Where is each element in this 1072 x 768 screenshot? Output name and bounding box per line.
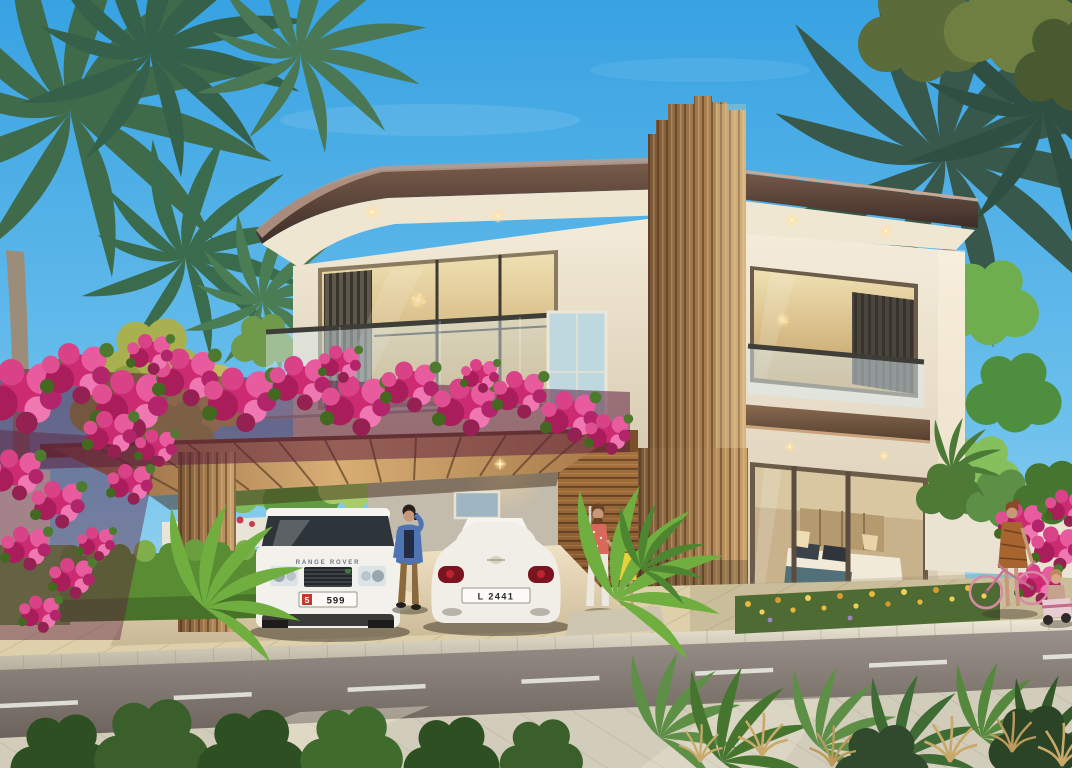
bedside-lamp (862, 534, 878, 551)
soffit-downlight (785, 213, 799, 227)
man-face (404, 511, 415, 522)
man-shoe (411, 604, 421, 610)
suv-headlight (358, 566, 386, 586)
pillow (822, 545, 848, 562)
soffit-downlight (490, 208, 505, 223)
chandelier-glow (409, 291, 427, 309)
plate-number: L 2441 (478, 592, 515, 602)
bike-woman-head (1007, 508, 1018, 519)
coupe-tail-light (438, 566, 464, 583)
plate-number: 599 (327, 596, 346, 607)
man-arm (396, 530, 400, 558)
cloud-wisp (590, 58, 810, 82)
man-shirt (404, 530, 414, 558)
woman-head (593, 509, 604, 520)
villa-render-scene: RANGE ROVER 5 599 (0, 0, 1072, 768)
coupe-exhaust (442, 608, 462, 616)
coupe-tail-light (528, 566, 554, 583)
suv-wheel (368, 620, 394, 628)
soffit-downlight (784, 441, 796, 453)
coupe-exhaust (530, 608, 550, 616)
plate-badge: 5 (305, 595, 310, 605)
toddler-head (1051, 574, 1061, 584)
soffit-downlight (364, 204, 379, 219)
soffit-downlight (879, 224, 893, 238)
canopy-downlight (493, 457, 507, 471)
suv-hood-text: RANGE ROVER (296, 560, 360, 566)
coupe-license-plate: L 2441 (462, 588, 530, 603)
soffit-downlight (878, 450, 890, 462)
suv-wheel (262, 620, 288, 628)
man-shoe (396, 602, 406, 608)
carport-window (455, 492, 499, 518)
suv-license-plate: 5 599 (299, 592, 357, 607)
suv-badge (345, 569, 351, 573)
